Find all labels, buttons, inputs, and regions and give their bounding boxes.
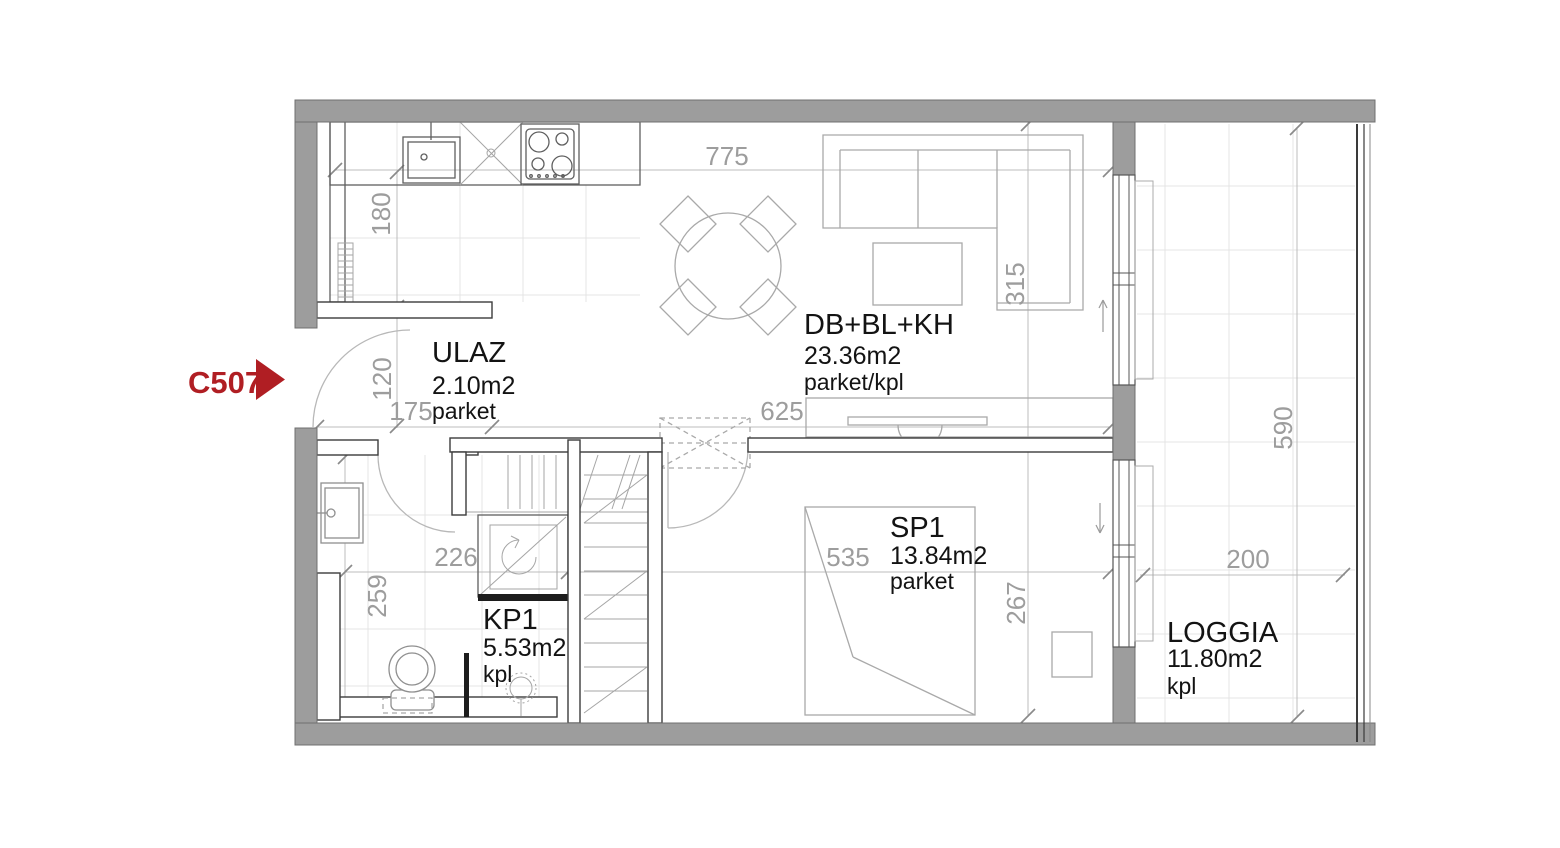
shower xyxy=(478,515,568,597)
dim-259: 259 xyxy=(362,574,392,617)
dim-535: 535 xyxy=(826,542,869,572)
wardrobe-right-wall xyxy=(648,452,662,723)
room-loggia-floor: kpl xyxy=(1167,673,1196,699)
room-sp1-name: SP1 xyxy=(890,512,945,544)
toilet xyxy=(389,646,435,710)
loggia-pier-bottom xyxy=(1113,647,1135,723)
floor-plan-page: 775 180 120 175 625 315 267 535 226 259 … xyxy=(0,0,1560,848)
room-sp1-floor: parket xyxy=(890,568,955,594)
shower-wall-band xyxy=(478,594,568,601)
dim-267: 267 xyxy=(1001,581,1031,624)
chair xyxy=(660,279,716,335)
coffee-table xyxy=(873,243,962,305)
top-wall xyxy=(295,100,1375,122)
dim-775: 775 xyxy=(705,141,748,171)
washbasin xyxy=(317,483,363,543)
hall-wardrobe xyxy=(466,452,648,512)
room-kp1-area: 5.53m2 xyxy=(483,634,566,662)
dim-226: 226 xyxy=(434,542,477,572)
loggia-railing xyxy=(1357,124,1370,742)
room-living-area: 23.36m2 xyxy=(804,342,901,370)
room-ulaz-area: 2.10m2 xyxy=(432,372,515,400)
room-ulaz-floor: parket xyxy=(432,398,497,424)
bathroom-door xyxy=(378,455,455,532)
dim-120: 120 xyxy=(367,357,397,400)
dining-table xyxy=(660,196,796,335)
room-sp1-area: 13.84m2 xyxy=(890,542,987,570)
bath-wall-left-stub xyxy=(317,440,378,455)
dim-590: 590 xyxy=(1268,406,1298,449)
overhead-cabinet xyxy=(660,418,750,468)
nightstand xyxy=(1052,632,1092,677)
dim-315: 315 xyxy=(1000,262,1030,305)
bedroom-door xyxy=(668,450,748,528)
room-loggia-area: 11.80m2 xyxy=(1167,645,1262,673)
chair xyxy=(740,196,796,252)
unit-label-group: C507 xyxy=(188,359,285,400)
living-bedroom-wall-left xyxy=(450,438,662,452)
entrance-arrow-icon xyxy=(256,359,285,400)
niche-left-wall xyxy=(452,452,466,515)
unit-label: C507 xyxy=(188,365,262,400)
living-room-window xyxy=(1113,175,1153,385)
dim-625: 625 xyxy=(760,396,803,426)
loggia-pier-middle xyxy=(1113,385,1135,460)
left-wall-lower xyxy=(295,428,317,723)
glass-partition xyxy=(464,653,469,717)
floor-plan-drawing: 775 180 120 175 625 315 267 535 226 259 … xyxy=(0,0,1560,848)
corner-cabinet xyxy=(460,122,523,185)
loggia-pier-top xyxy=(1113,122,1135,175)
room-kp1-floor: kpl xyxy=(483,661,512,687)
bathroom-left-lining xyxy=(317,573,340,720)
bedroom-window xyxy=(1113,460,1153,647)
chair xyxy=(740,279,796,335)
window-opening-arrows xyxy=(1096,300,1107,533)
bottom-wall xyxy=(295,723,1375,745)
stove xyxy=(521,124,579,184)
left-wall-upper xyxy=(295,122,317,328)
living-bedroom-wall-right xyxy=(748,438,1113,452)
kitchen-sink xyxy=(403,122,460,183)
room-kp1-name: KP1 xyxy=(483,604,538,636)
dim-200: 200 xyxy=(1226,544,1269,574)
dim-180: 180 xyxy=(366,192,396,235)
dim-175: 175 xyxy=(389,396,432,426)
entry-kitchen-wall xyxy=(317,302,492,318)
room-living-floor: parket/kpl xyxy=(804,369,904,395)
room-living-name: DB+BL+KH xyxy=(804,309,954,341)
sofa xyxy=(823,135,1083,310)
room-ulaz-name: ULAZ xyxy=(432,337,506,369)
chair xyxy=(660,196,716,252)
tall-wardrobe xyxy=(584,475,647,713)
bathroom-right-wall xyxy=(568,440,580,723)
bathroom-ledge xyxy=(337,697,557,717)
